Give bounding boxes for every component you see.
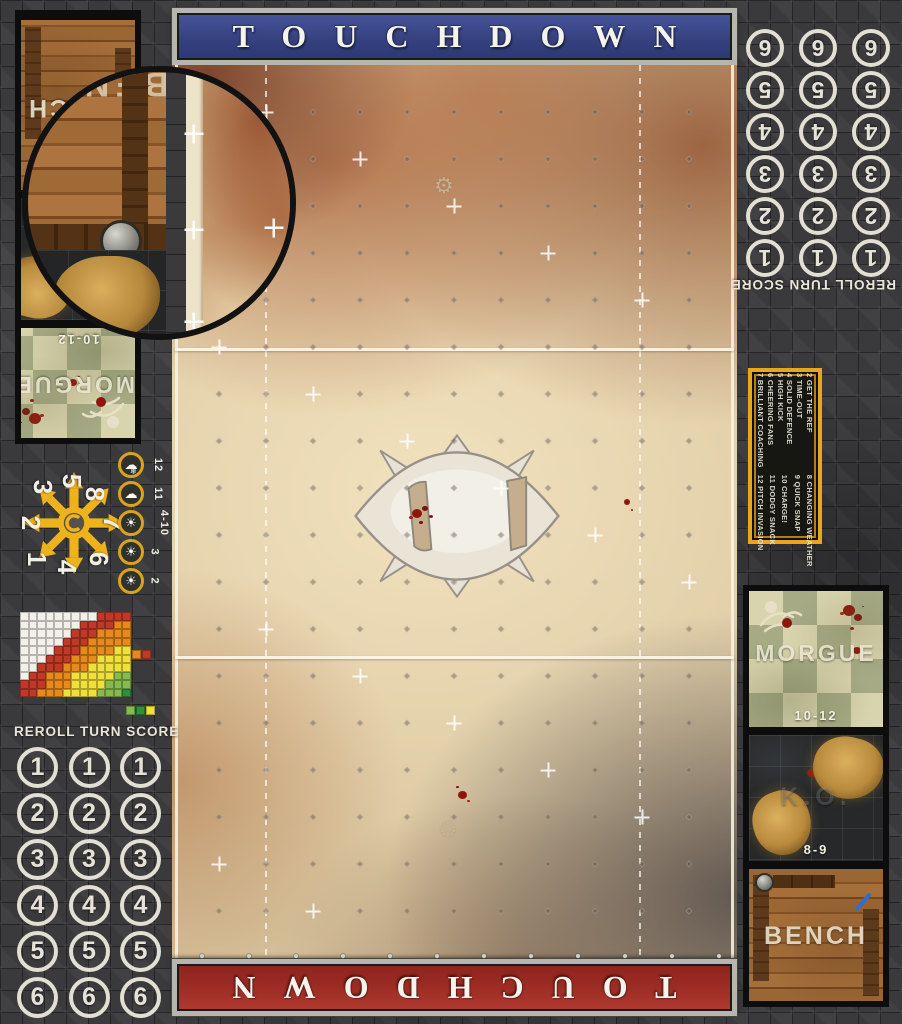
diamond-mark [544, 860, 551, 867]
range-cell [105, 672, 114, 681]
gear-mark-icon: ⚙ [434, 173, 454, 199]
weather-track: 12 11 4-10 3 2 [118, 450, 172, 595]
range-ruler-chart [20, 610, 180, 720]
weather-icon [118, 452, 144, 478]
diamond-mark [450, 155, 457, 162]
reroll-circle: 5 [852, 71, 890, 109]
diamond-mark [215, 719, 222, 726]
range-cell [20, 672, 29, 681]
weather-range-label: 3 [149, 548, 161, 555]
metal-knob [755, 873, 774, 892]
range-cell [88, 621, 97, 630]
reroll-circle: 3 [17, 839, 58, 880]
diamond-mark [450, 390, 457, 397]
range-cell [37, 663, 46, 672]
diamond-mark [591, 202, 598, 209]
diamond-mark [497, 202, 504, 209]
gear-mark-icon: ⚙ [438, 817, 458, 843]
diamond-mark [309, 578, 316, 585]
range-cell [29, 655, 38, 664]
diamond-mark [450, 296, 457, 303]
left-morgue-section: MORGUE 10-12 [21, 328, 135, 438]
diamond-mark [591, 907, 598, 914]
diamond-mark [403, 249, 410, 256]
kickoff-entry: 5 HIGH KICK [776, 373, 785, 468]
range-cell [88, 689, 97, 698]
score-circle: 4 [120, 885, 161, 926]
diamond-mark [497, 625, 504, 632]
range-cell [71, 655, 80, 664]
reroll-circle: 6 [17, 977, 58, 1018]
range-cell [46, 689, 55, 698]
lens-stone-gap [166, 72, 186, 336]
reroll-circle: 2 [17, 793, 58, 834]
range-legend-cell [136, 706, 145, 715]
range-cell [105, 689, 114, 698]
range-row [20, 638, 131, 647]
cross-mark [353, 152, 368, 167]
range-cell [122, 663, 131, 672]
kickoff-entry: 8 CHANGING WEATHER [805, 475, 814, 567]
weather-row: 2 [118, 566, 172, 595]
diamond-mark [591, 625, 598, 632]
diamond-mark [544, 202, 551, 209]
range-grid [20, 612, 131, 697]
range-legend-cell [126, 706, 135, 715]
score-circle: 2 [746, 197, 784, 235]
range-cell [88, 655, 97, 664]
range-cell [88, 672, 97, 681]
diamond-mark [262, 484, 269, 491]
lens-wood-bar [28, 224, 166, 250]
diamond-mark [591, 719, 598, 726]
diamond-mark [403, 766, 410, 773]
diamond-mark [215, 390, 222, 397]
diamond-mark [544, 672, 551, 679]
turn-circle: 1 [69, 747, 110, 788]
diamond-mark [591, 108, 598, 115]
turn-circle: 6 [69, 977, 110, 1018]
turn-track-row: 5 5 5 [14, 931, 164, 972]
range-cell [29, 689, 38, 698]
range-cell [114, 672, 123, 681]
diamond-mark [685, 202, 692, 209]
cross-mark [447, 199, 462, 214]
cross-mark [265, 219, 284, 238]
turn-circle: 4 [69, 885, 110, 926]
diamond-mark [356, 907, 363, 914]
reroll-circle: 2 [852, 197, 890, 235]
kickoff-entry: 12 PITCH INVASION [756, 475, 765, 567]
range-cell [29, 672, 38, 681]
range-cell [97, 689, 106, 698]
right-bench-section: BENCH [749, 869, 883, 1001]
diamond-mark [403, 625, 410, 632]
diamond-mark [403, 296, 410, 303]
diamond-mark [215, 766, 222, 773]
diamond-mark [215, 484, 222, 491]
range-cell [63, 621, 72, 630]
diamond-mark [497, 860, 504, 867]
range-legend-cell [142, 650, 151, 659]
diamond-mark [544, 813, 551, 820]
range-cell [63, 663, 72, 672]
range-cell [37, 646, 46, 655]
diamond-mark [544, 108, 551, 115]
range-cell [80, 621, 89, 630]
diamond-mark [262, 672, 269, 679]
range-legend-bottom [126, 706, 155, 715]
score-circle: 2 [120, 793, 161, 834]
range-cell [29, 663, 38, 672]
range-cell [97, 655, 106, 664]
reroll-circle: 6 [852, 29, 890, 67]
range-cell [37, 612, 46, 621]
range-cell [97, 663, 106, 672]
diamond-mark [544, 625, 551, 632]
diamond-mark [403, 907, 410, 914]
range-cell [80, 663, 89, 672]
range-row [20, 621, 131, 630]
cross-mark [635, 293, 650, 308]
weather-icon [118, 568, 144, 594]
diamond-mark [497, 296, 504, 303]
diamond-mark [309, 296, 316, 303]
range-cell [122, 680, 131, 689]
range-cell [122, 646, 131, 655]
diamond-mark [685, 484, 692, 491]
right-ko-label: K.O. [749, 783, 883, 812]
range-cell [20, 663, 29, 672]
diamond-mark [497, 390, 504, 397]
lens-wood-post [122, 72, 148, 224]
range-cell [80, 629, 89, 638]
blood-splatter [843, 605, 855, 616]
touchdown-banner-top-label: TOUCHDOWN [205, 18, 705, 55]
turn-circle: 2 [69, 793, 110, 834]
range-cell [97, 612, 106, 621]
range-cell [54, 689, 63, 698]
range-cell [88, 629, 97, 638]
diamond-mark [497, 719, 504, 726]
left-morgue-range: 10-12 [21, 332, 135, 347]
range-cell [29, 680, 38, 689]
turn-circle: 1 [799, 239, 837, 277]
diamond-mark [262, 578, 269, 585]
diamond-mark [685, 437, 692, 444]
turn-circle: 5 [69, 931, 110, 972]
range-cell [46, 612, 55, 621]
left-turn-track: REROLL TURN SCORE 1 1 1 2 2 2 3 3 3 4 4 [14, 722, 164, 1023]
range-cell [63, 672, 72, 681]
range-cell [122, 629, 131, 638]
diamond-mark [309, 672, 316, 679]
diamond-mark [262, 390, 269, 397]
diamond-mark [591, 390, 598, 397]
range-row [20, 672, 131, 681]
cross-mark [185, 221, 204, 240]
score-circle: 5 [120, 931, 161, 972]
diamond-mark [403, 390, 410, 397]
diamond-mark [403, 672, 410, 679]
diamond-mark [262, 437, 269, 444]
range-cell [122, 689, 131, 698]
range-row [20, 680, 131, 689]
cross-mark [447, 716, 462, 731]
range-cell [122, 612, 131, 621]
game-board: TOUCHDOWN [0, 0, 902, 1024]
range-cell [29, 629, 38, 638]
range-cell [114, 629, 123, 638]
wood-bar [773, 875, 835, 888]
diamond-mark [403, 108, 410, 115]
range-cell [63, 655, 72, 664]
diamond-mark [262, 531, 269, 538]
range-cell [29, 621, 38, 630]
range-cell [20, 655, 29, 664]
turn-circle: 2 [799, 197, 837, 235]
cross-mark [682, 575, 697, 590]
diamond-mark [685, 625, 692, 632]
range-cell [20, 680, 29, 689]
kickoff-table-content: 2 GET THE REF3 TIME-OUT4 SOLID DEFENCE5 … [756, 373, 814, 539]
skeleton-icon [753, 593, 809, 639]
range-cell [46, 680, 55, 689]
diamond-mark [685, 907, 692, 914]
range-cell [97, 638, 106, 647]
turn-circle: 3 [69, 839, 110, 880]
diamond-mark [591, 578, 598, 585]
turn-track-row: 6 6 6 [14, 977, 164, 1018]
range-cell [37, 672, 46, 681]
right-ko-section: K.O. 8-9 [749, 735, 883, 861]
range-cell [80, 646, 89, 655]
range-cell [37, 638, 46, 647]
range-cell [54, 621, 63, 630]
range-cell [71, 621, 80, 630]
turn-track-row: 2 2 2 [14, 793, 164, 834]
diamond-mark [309, 484, 316, 491]
range-cell [80, 638, 89, 647]
pitch-right-line [731, 65, 734, 959]
diamond-mark [309, 766, 316, 773]
diamond-mark [309, 108, 316, 115]
left-track-header: REROLL TURN SCORE [14, 724, 164, 739]
range-cell [114, 646, 123, 655]
score-circle: 3 [120, 839, 161, 880]
range-cell [88, 612, 97, 621]
weather-row: 12 [118, 450, 172, 479]
diamond-mark [356, 390, 363, 397]
diamond-mark [262, 766, 269, 773]
diamond-mark [356, 766, 363, 773]
cross-mark [259, 622, 274, 637]
range-cell [29, 638, 38, 647]
diamond-mark [591, 766, 598, 773]
diamond-mark [497, 672, 504, 679]
kickoff-entry: 10 CHARGE! [781, 475, 790, 567]
diamond-mark [544, 390, 551, 397]
diamond-mark [262, 907, 269, 914]
diamond-mark [262, 813, 269, 820]
range-cell [46, 663, 55, 672]
diamond-mark [591, 296, 598, 303]
diamond-mark [591, 155, 598, 162]
cross-mark [212, 857, 227, 872]
turn-track-row: 1 1 1 [14, 747, 164, 788]
range-cell [63, 638, 72, 647]
right-bench-label: BENCH [749, 922, 883, 951]
right-ko-range: 8-9 [749, 842, 883, 857]
blood-splatter [624, 499, 630, 505]
reroll-circle: 1 [852, 239, 890, 277]
score-circle: 5 [746, 71, 784, 109]
reroll-circle: 3 [852, 155, 890, 193]
diamond-mark [450, 860, 457, 867]
kickoff-entry: 3 TIME-OUT [795, 373, 804, 468]
diamond-mark [356, 108, 363, 115]
range-cell [37, 655, 46, 664]
turn-track-row: 5 5 5 [740, 71, 896, 109]
diamond-mark [450, 625, 457, 632]
diamond-mark [309, 860, 316, 867]
third-line-lower [175, 656, 734, 659]
range-cell [37, 689, 46, 698]
range-cell [105, 680, 114, 689]
range-cell [105, 629, 114, 638]
cross-mark [306, 904, 321, 919]
diamond-mark [685, 249, 692, 256]
score-circle: 1 [120, 747, 161, 788]
turn-track-row: 4 4 4 [740, 113, 896, 151]
range-cell [71, 672, 80, 681]
range-cell [54, 655, 63, 664]
diamond-mark [685, 719, 692, 726]
range-cell [54, 646, 63, 655]
right-turn-track: REROLL TURN SCORE 1 1 1 2 2 2 3 3 3 4 4 [740, 10, 896, 298]
range-cell [37, 629, 46, 638]
score-circle: 6 [120, 977, 161, 1018]
cross-mark [212, 340, 227, 355]
range-cell [20, 638, 29, 647]
scatter-number-3: 3 [30, 476, 56, 498]
diamond-mark [356, 202, 363, 209]
weather-range-label: 4-10 [158, 509, 170, 535]
diamond-mark [215, 672, 222, 679]
wide-zone-dash-right [639, 65, 641, 959]
diamond-mark [356, 296, 363, 303]
magnifier-inset: BENCH [22, 66, 296, 340]
range-cell [46, 655, 55, 664]
scatter-number-2: 2 [18, 512, 44, 534]
diamond-mark [591, 672, 598, 679]
range-cell [29, 646, 38, 655]
diamond-mark [403, 860, 410, 867]
right-morgue-label: MORGUE [749, 640, 883, 667]
range-cell [46, 621, 55, 630]
cross-mark [494, 481, 509, 496]
reroll-circle: 4 [852, 113, 890, 151]
turn-circle: 5 [799, 71, 837, 109]
kickoff-entry: 4 SOLID DEFENCE [785, 373, 794, 468]
center-emblem [348, 433, 566, 599]
range-cell [54, 663, 63, 672]
range-cell [54, 629, 63, 638]
range-cell [97, 621, 106, 630]
diamond-mark [262, 860, 269, 867]
weather-icon [118, 539, 144, 565]
right-morgue-range: 10-12 [749, 708, 883, 723]
range-cell [71, 612, 80, 621]
range-cell [80, 680, 89, 689]
diamond-mark [309, 625, 316, 632]
range-cell [54, 672, 63, 681]
diamond-mark [309, 249, 316, 256]
range-cell [20, 612, 29, 621]
range-cell [71, 646, 80, 655]
kickoff-entry: 2 GET THE REF [805, 373, 814, 468]
turn-track-row: 1 1 1 [740, 239, 896, 277]
range-cell [46, 672, 55, 681]
range-cell [46, 629, 55, 638]
diamond-mark [685, 813, 692, 820]
diamond-mark [215, 907, 222, 914]
cross-mark [306, 387, 321, 402]
range-cell [71, 638, 80, 647]
range-cell [54, 612, 63, 621]
range-cell [71, 629, 80, 638]
left-morgue-label: MORGUE [21, 371, 135, 398]
diamond-mark [403, 813, 410, 820]
diamond-mark [497, 249, 504, 256]
range-cell [37, 680, 46, 689]
range-legend-mid [132, 650, 151, 659]
diamond-mark [403, 719, 410, 726]
range-cell [97, 672, 106, 681]
range-cell [20, 689, 29, 698]
range-cell [71, 663, 80, 672]
diamond-mark [497, 155, 504, 162]
range-legend-cell [132, 650, 141, 659]
diamond-mark [403, 155, 410, 162]
diamond-mark [309, 202, 316, 209]
diamond-mark [685, 296, 692, 303]
diamond-mark [685, 766, 692, 773]
blood-splatter [29, 413, 41, 424]
diamond-mark [403, 202, 410, 209]
diamond-mark [591, 249, 598, 256]
cross-mark [400, 434, 415, 449]
kickoff-column-2: 8 CHANGING WEATHER9 QUICK SNAP10 CHARGE!… [756, 475, 814, 567]
scatter-number-4: 4 [54, 556, 80, 578]
scatter-number-1: 1 [24, 548, 50, 570]
diamond-mark [450, 907, 457, 914]
range-row [20, 612, 131, 621]
range-cell [88, 646, 97, 655]
range-cell [105, 663, 114, 672]
diamond-mark [591, 484, 598, 491]
diamond-mark [309, 719, 316, 726]
range-cell [20, 646, 29, 655]
kickoff-table: 2 GET THE REF3 TIME-OUT4 SOLID DEFENCE5 … [748, 368, 822, 544]
range-cell [114, 612, 123, 621]
range-cell [63, 629, 72, 638]
cross-mark [541, 246, 556, 261]
range-cell [97, 680, 106, 689]
turn-track-row: 2 2 2 [740, 197, 896, 235]
range-cell [97, 646, 106, 655]
kickoff-entry: 11 DODGY SNACK [768, 475, 777, 567]
